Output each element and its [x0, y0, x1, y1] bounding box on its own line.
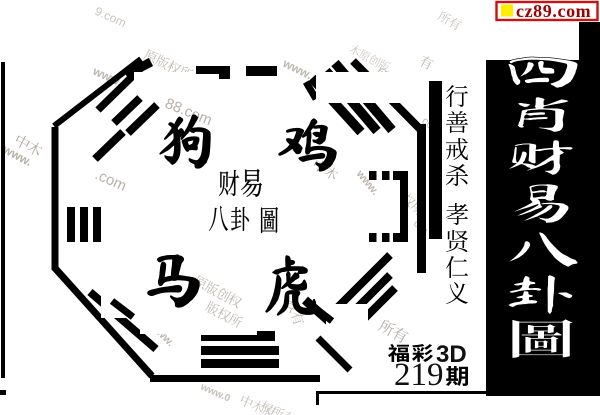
svg-text:219: 219: [394, 357, 444, 393]
svg-text:cz89.com: cz89.com: [516, 1, 591, 21]
